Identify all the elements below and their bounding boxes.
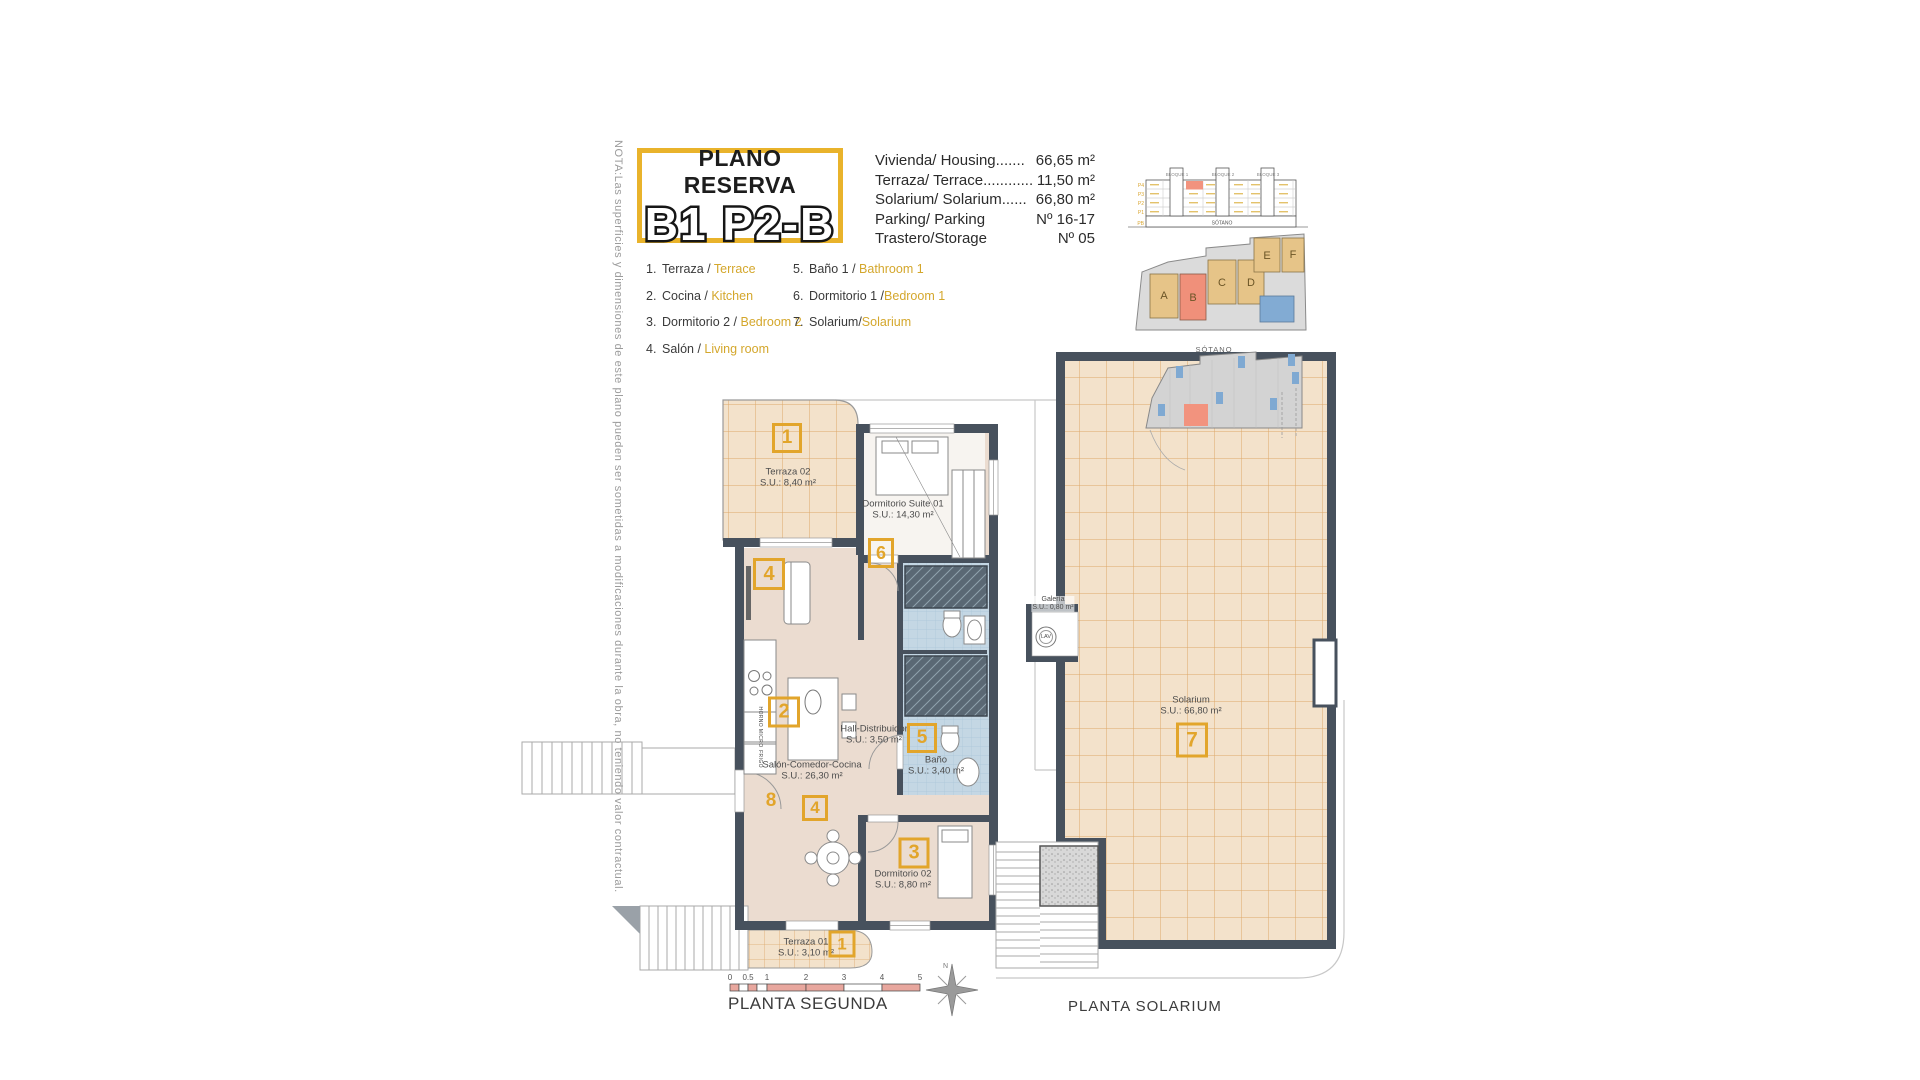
summary-value: 66,80 m² bbox=[1036, 190, 1095, 210]
summary-row: Trastero/StorageNº 05 bbox=[875, 229, 1095, 249]
hall-label: Hall-DistribuidorS.U.: 3,50 m² bbox=[840, 725, 908, 746]
terraza01-label: Terraza 01S.U.: 3,10 m² bbox=[778, 938, 834, 959]
badge-eight: 8 bbox=[760, 790, 782, 812]
svg-text:2: 2 bbox=[804, 973, 809, 982]
svg-text:0: 0 bbox=[728, 973, 733, 982]
title-box: PLANO RESERVA B1 P2-B bbox=[637, 148, 843, 243]
badge-terraza02: 1 bbox=[772, 423, 802, 453]
summary-value: Nº 05 bbox=[1058, 229, 1095, 249]
summary-row: Parking/ ParkingNº 16-17 bbox=[875, 210, 1095, 230]
legend-item: 4.Salón / Living room bbox=[646, 342, 802, 369]
summary-row: Vivienda/ Housing.......66,65 m² bbox=[875, 151, 1095, 171]
svg-text:P4: P4 bbox=[1138, 183, 1144, 189]
svg-text:C: C bbox=[1218, 277, 1226, 289]
legend-column-2: 5.Baño 1 / Bathroom 1 6.Dormitorio 1 /Be… bbox=[793, 262, 945, 342]
badge-bano: 5 bbox=[907, 723, 937, 753]
badge-salon: 4 bbox=[753, 558, 785, 590]
legend-item: 3.Dormitorio 2 / Bedroom 2 bbox=[646, 315, 802, 342]
summary-value: 11,50 m² bbox=[1037, 171, 1095, 191]
svg-text:3: 3 bbox=[842, 973, 847, 982]
badge-terraza01: 1 bbox=[829, 931, 856, 958]
building-elevation-minimap: BLOQUE 1 BLOQUE 2 BLOQUE 3 P4 P3 P2 P1 P… bbox=[1128, 168, 1308, 227]
horno-label: HORNO MICRO bbox=[757, 706, 763, 747]
reservation-plan-sheet: BLOQUE 1 BLOQUE 2 BLOQUE 3 P4 P3 P2 P1 P… bbox=[0, 0, 1920, 1080]
svg-text:P2: P2 bbox=[1138, 201, 1144, 207]
svg-text:5: 5 bbox=[918, 973, 923, 982]
highlighted-parking-space bbox=[1184, 404, 1208, 426]
summary-label: Trastero/Storage bbox=[875, 229, 987, 249]
bano-label: BañoS.U.: 3,40 m² bbox=[908, 756, 964, 777]
summary-label: Vivienda/ Housing....... bbox=[875, 151, 1025, 171]
right-wall-niche bbox=[1314, 640, 1336, 706]
galeria-label: GaleríaS.U.: 0,80 m² bbox=[1031, 596, 1074, 612]
disclaimer-note: NOTA:Las superficies y dimensiones de es… bbox=[612, 140, 624, 900]
svg-text:PB: PB bbox=[1137, 221, 1144, 227]
shower-main bbox=[905, 656, 987, 716]
frigo-label: FRIGO bbox=[757, 750, 763, 768]
summary-value: 66,65 m² bbox=[1036, 151, 1095, 171]
svg-text:P1: P1 bbox=[1138, 210, 1144, 216]
north-compass: N bbox=[926, 963, 978, 1016]
planta-segunda-title: PLANTA SEGUNDA bbox=[728, 994, 888, 1014]
svg-text:4: 4 bbox=[880, 973, 885, 982]
unit-code: B1 P2-B bbox=[642, 201, 838, 247]
svg-text:B: B bbox=[1189, 292, 1196, 304]
scale-bar: 0 0.5 1 2 3 4 5 bbox=[728, 973, 923, 991]
dorm02-label: Dormitorio 02S.U.: 8,80 m² bbox=[874, 870, 931, 891]
svg-text:1: 1 bbox=[765, 973, 770, 982]
badge-suite: 6 bbox=[868, 538, 894, 568]
salon-label: Salón-Comedor-CocinaS.U.: 26,30 m² bbox=[762, 761, 861, 782]
solarium-label: SolariumS.U.: 66,80 m² bbox=[1160, 696, 1221, 717]
summary-row: Solarium/ Solarium......66,80 m² bbox=[875, 190, 1095, 210]
svg-text:D: D bbox=[1247, 277, 1255, 289]
sotano-strip-label: SÓTANO bbox=[1212, 220, 1233, 227]
surface-summary: Vivienda/ Housing.......66,65 m² Terraza… bbox=[875, 151, 1095, 249]
compass-n-label: N bbox=[943, 963, 948, 970]
svg-text:A: A bbox=[1160, 290, 1168, 302]
legend-column-1: 1.Terraza / Terrace 2.Cocina / Kitchen 3… bbox=[646, 262, 802, 368]
legend-item: 5.Baño 1 / Bathroom 1 bbox=[793, 262, 945, 289]
common-stairs-landing bbox=[522, 742, 735, 794]
suite-label: Dormitorio Suite 01S.U.: 14,30 m² bbox=[862, 500, 943, 521]
floor-labels: P4 P3 P2 P1 PB bbox=[1137, 183, 1144, 227]
svg-text:F: F bbox=[1290, 249, 1297, 261]
legend-item: 2.Cocina / Kitchen bbox=[646, 289, 802, 316]
planta-solarium-drawing bbox=[996, 352, 1336, 968]
summary-label: Parking/ Parking bbox=[875, 210, 985, 230]
shower-ensuite bbox=[905, 566, 987, 608]
bloque1-label: BLOQUE 1 bbox=[1166, 172, 1189, 177]
solarium-stairs bbox=[996, 842, 1098, 968]
lower-stairs bbox=[612, 906, 748, 970]
badge-comedor: 4 bbox=[802, 795, 828, 821]
svg-text:P3: P3 bbox=[1138, 192, 1144, 198]
plan-kicker: PLANO RESERVA bbox=[642, 145, 838, 199]
pool bbox=[1260, 296, 1294, 322]
sotano-title: SÓTANO bbox=[1195, 345, 1232, 354]
legend-item: 7.Solarium/Solarium bbox=[793, 315, 945, 342]
svg-text:E: E bbox=[1263, 250, 1270, 262]
terraza02-label: Terraza 02S.U.: 8,40 m² bbox=[760, 468, 816, 489]
washer-label: LAV bbox=[1040, 633, 1052, 641]
legend-item: 1.Terraza / Terrace bbox=[646, 262, 802, 289]
svg-text:0.5: 0.5 bbox=[742, 973, 754, 982]
badge-dorm02: 3 bbox=[899, 838, 930, 869]
legend-item: 6.Dormitorio 1 /Bedroom 1 bbox=[793, 289, 945, 316]
highlighted-unit-cell bbox=[1186, 181, 1203, 190]
bloque2-label: BLOQUE 2 bbox=[1212, 172, 1235, 177]
summary-label: Terraza/ Terrace............ bbox=[875, 171, 1033, 191]
badge-cocina: 2 bbox=[768, 697, 800, 728]
summary-value: Nº 16-17 bbox=[1036, 210, 1095, 230]
summary-row: Terraza/ Terrace............11,50 m² bbox=[875, 171, 1095, 191]
site-plan-minimap: A B C D E F bbox=[1136, 234, 1306, 330]
badge-solarium: 7 bbox=[1176, 723, 1208, 758]
planta-solarium-title: PLANTA SOLARIUM bbox=[1068, 998, 1222, 1015]
bloque3-label: BLOQUE 3 bbox=[1257, 172, 1280, 177]
summary-label: Solarium/ Solarium...... bbox=[875, 190, 1027, 210]
